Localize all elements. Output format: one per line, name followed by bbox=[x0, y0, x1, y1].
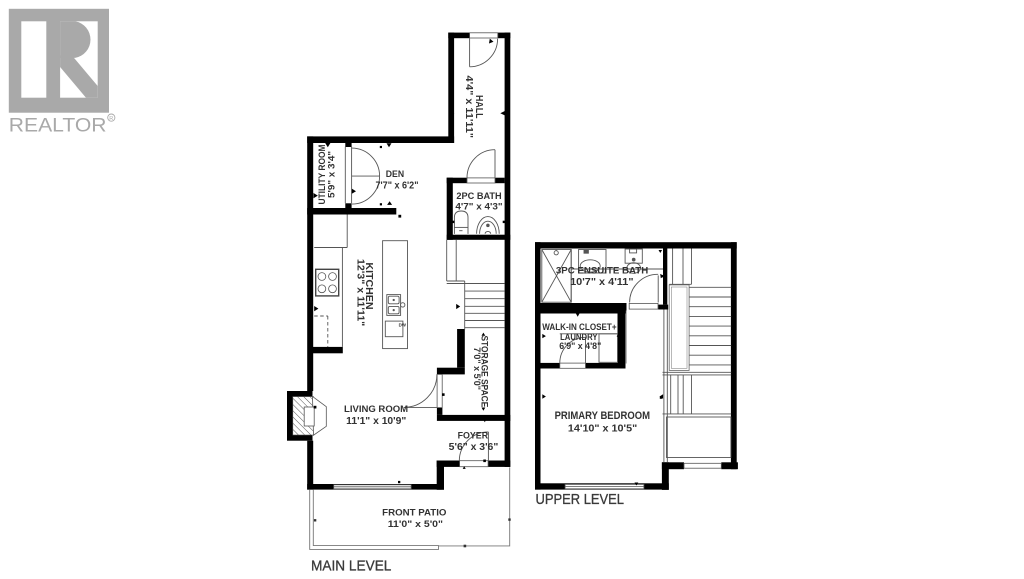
svg-text:FRONT PATIO: FRONT PATIO bbox=[382, 508, 446, 518]
svg-text:4'7" x 4'3": 4'7" x 4'3" bbox=[455, 202, 502, 213]
svg-text:WALK-IN CLOSET+: WALK-IN CLOSET+ bbox=[542, 322, 616, 332]
svg-text:3PC ENSUITE BATH: 3PC ENSUITE BATH bbox=[556, 265, 648, 276]
svg-text:UPPER LEVEL: UPPER LEVEL bbox=[536, 492, 625, 508]
svg-text:5'9" x 3'4": 5'9" x 3'4" bbox=[327, 151, 337, 198]
svg-text:11'0" x 5'0": 11'0" x 5'0" bbox=[388, 519, 443, 530]
svg-text:14'10" x 10'5": 14'10" x 10'5" bbox=[568, 424, 637, 435]
svg-text:7'0" x 5'0": 7'0" x 5'0" bbox=[472, 347, 482, 390]
svg-text:MAIN LEVEL: MAIN LEVEL bbox=[311, 559, 391, 575]
svg-text:5'6" x 3'6": 5'6" x 3'6" bbox=[449, 442, 499, 453]
svg-text:7'7" x 6'2": 7'7" x 6'2" bbox=[376, 180, 419, 191]
svg-text:DEN: DEN bbox=[386, 169, 405, 179]
svg-text:FOYER: FOYER bbox=[458, 431, 489, 441]
svg-text:12'3" x 11'11": 12'3" x 11'11" bbox=[354, 259, 365, 326]
svg-text:11'1" x 10'9": 11'1" x 10'9" bbox=[346, 416, 406, 427]
svg-text:4'4" x 11'11": 4'4" x 11'11" bbox=[463, 76, 474, 139]
svg-text:6'9" x 4'8": 6'9" x 4'8" bbox=[559, 341, 601, 351]
svg-text:DW: DW bbox=[399, 322, 407, 327]
svg-text:PRIMARY BEDROOM: PRIMARY BEDROOM bbox=[555, 410, 650, 422]
svg-text:R: R bbox=[109, 116, 113, 122]
svg-text:LIVING ROOM: LIVING ROOM bbox=[344, 404, 408, 414]
svg-text:REALTOR: REALTOR bbox=[9, 115, 107, 137]
svg-text:10'7" x 4'11": 10'7" x 4'11" bbox=[570, 277, 633, 288]
svg-text:2PC BATH: 2PC BATH bbox=[456, 191, 501, 201]
